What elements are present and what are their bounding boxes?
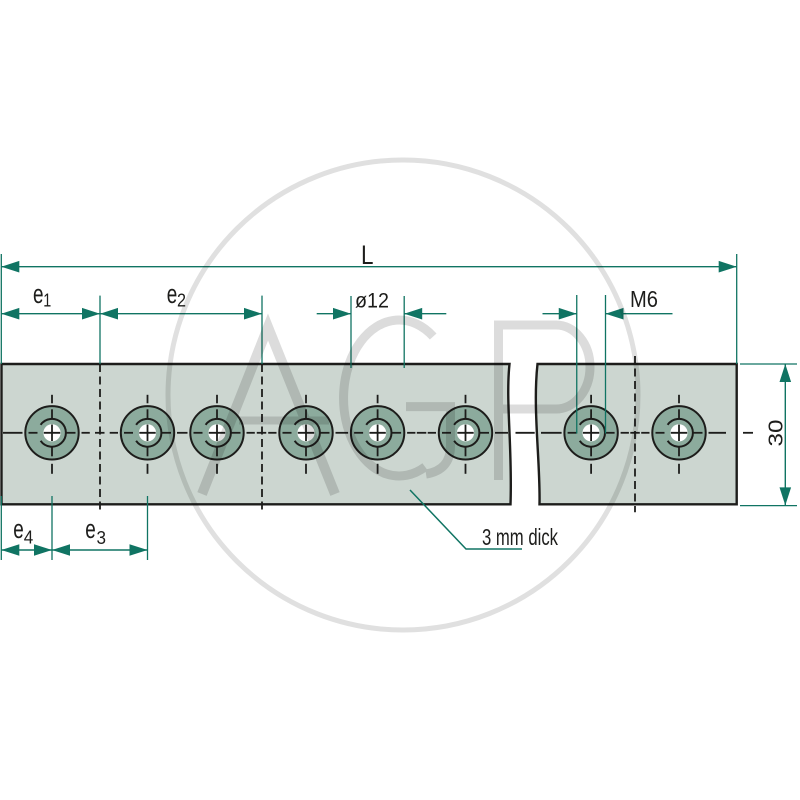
svg-text:4: 4 bbox=[24, 528, 34, 548]
svg-text:e: e bbox=[85, 514, 96, 544]
svg-text:e: e bbox=[33, 279, 44, 309]
svg-text:L: L bbox=[361, 240, 374, 270]
svg-text:30: 30 bbox=[765, 420, 788, 447]
svg-text:e: e bbox=[167, 279, 178, 309]
svg-text:3: 3 bbox=[97, 528, 107, 548]
svg-text:ø12: ø12 bbox=[355, 289, 389, 313]
svg-text:e: e bbox=[13, 514, 23, 544]
svg-text:1: 1 bbox=[43, 291, 51, 311]
svg-text:3 mm dick: 3 mm dick bbox=[482, 524, 558, 550]
svg-text:M6: M6 bbox=[630, 286, 658, 312]
